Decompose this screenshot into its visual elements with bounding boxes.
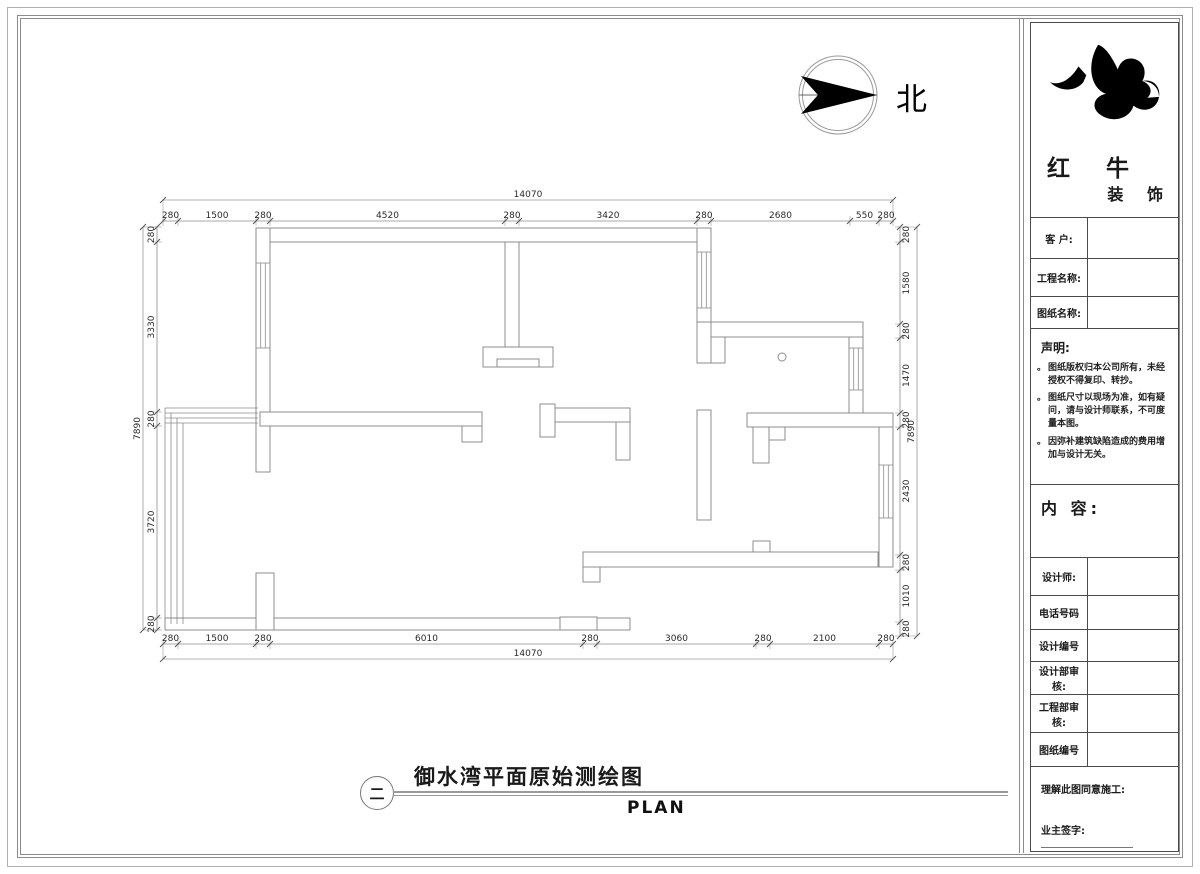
signature-line[interactable] (1041, 837, 1133, 848)
flue-symbol (778, 353, 786, 361)
dim-chain-left: 280333028037202807890 (133, 224, 162, 633)
dim-label: 6010 (415, 634, 438, 644)
drawing-subtitle: PLAN (627, 798, 686, 818)
north-arrow: 北 (799, 56, 927, 134)
project-value[interactable] (1088, 259, 1178, 296)
dim-chain-right: 28015802801470280243028010102807890 (895, 224, 920, 639)
wall (697, 322, 711, 363)
wall (697, 410, 711, 520)
dim-label: 2100 (813, 634, 836, 644)
design-no-label: 设计编号 (1031, 630, 1088, 661)
north-label: 北 (896, 82, 927, 118)
project-label: 工程名称: (1031, 259, 1088, 296)
content-label: 内 容: (1041, 495, 1101, 557)
statement-item: 因弥补建筑缺陷造成的费用增加与设计无关。 (1039, 436, 1172, 462)
dim-label: 280 (902, 620, 912, 637)
dim-label: 1010 (902, 584, 912, 607)
windows (256, 252, 893, 518)
customer-label: 客 户: (1031, 218, 1088, 259)
drawing-name-row: 图纸名称: (1031, 296, 1178, 328)
phone-value[interactable] (1088, 596, 1178, 629)
wall-pier (462, 426, 482, 442)
titleblock-separator (1019, 18, 1024, 853)
eng-audit-row: 工程部审核: (1031, 694, 1178, 732)
drawing-no-value[interactable] (1088, 733, 1178, 766)
dim-label: 280 (147, 615, 157, 632)
company-logo (1045, 31, 1163, 143)
floor-plan-drawing: 北 (0, 0, 1016, 874)
designer-label: 设计师: (1031, 558, 1088, 595)
wall-pier (256, 573, 274, 630)
dim-label: 280 (254, 211, 271, 221)
company-suffix: 装 饰 (1107, 181, 1172, 205)
dim-label: 3330 (147, 315, 157, 338)
dim-label: 280 (902, 226, 912, 243)
title-rule-2 (393, 795, 1008, 796)
walls (165, 228, 893, 630)
dim-label: 1500 (206, 634, 229, 644)
dim-label: 1500 (206, 211, 229, 221)
eng-audit-label: 工程部审核: (1031, 695, 1088, 732)
dim-label: 280 (902, 554, 912, 571)
dim-chain-bottom: 280150028060102803060280210028014070 (160, 634, 896, 662)
logo-body-icon (1091, 45, 1159, 119)
wall-pier (711, 337, 725, 363)
design-audit-value[interactable] (1088, 662, 1178, 694)
wall (256, 228, 270, 472)
wall-pier (583, 567, 600, 582)
dim-label: 280 (877, 634, 894, 644)
dim-label: 280 (581, 634, 598, 644)
wall-pier (560, 617, 597, 630)
project-row: 工程名称: (1031, 258, 1178, 296)
dim-label: 280 (877, 211, 894, 221)
statement-item: 图纸版权归本公司所有，未经授权不得复印、转抄。 (1039, 362, 1172, 388)
wall (879, 427, 893, 567)
dim-label: 4520 (376, 211, 399, 221)
owner-sign-label: 业主签字: (1041, 826, 1085, 837)
design-no-value[interactable] (1088, 630, 1178, 661)
design-audit-label: 设计部审核: (1031, 662, 1088, 694)
balcony-glazing (165, 408, 258, 624)
wall-notch (497, 359, 539, 367)
wall (260, 228, 710, 242)
dim-label: 3720 (147, 510, 157, 533)
logo-cell: 红 牛 装 饰 (1031, 23, 1178, 217)
dim-label: 280 (503, 211, 520, 221)
dim-label: 280 (695, 211, 712, 221)
eng-audit-value[interactable] (1088, 695, 1178, 732)
dim-chain-top: 280150028045202803420280268055028014070 (160, 190, 896, 226)
wall (616, 422, 630, 460)
drawing-no-label: 图纸编号 (1031, 733, 1088, 766)
dim-overall-label: 14070 (514, 649, 543, 659)
customer-value[interactable] (1088, 218, 1178, 259)
dim-label: 3420 (597, 211, 620, 221)
dim-label: 280 (162, 634, 179, 644)
customer-row: 客 户: (1031, 217, 1178, 259)
signature-section: 理解此图同意施工: 业主签字: (1031, 766, 1178, 851)
wall (747, 413, 893, 427)
wall-pier (540, 404, 555, 437)
design-audit-row: 设计部审核: (1031, 661, 1178, 694)
wall (505, 242, 519, 347)
dim-label: 1470 (902, 364, 912, 387)
dim-label: 1580 (902, 271, 912, 294)
drawing-title: 御水湾平面原始测绘图 (414, 761, 644, 791)
wall (711, 322, 863, 337)
title-block: 红 牛 装 饰 客 户: 工程名称: 图纸名称: 声明: 图纸版权归本公司所有，… (1030, 22, 1179, 852)
drawing-name-value[interactable] (1088, 297, 1178, 328)
wall-pier (753, 541, 770, 552)
dim-overall-label: 14070 (514, 190, 543, 200)
content-section: 内 容: (1031, 484, 1178, 557)
dim-label: 280 (754, 634, 771, 644)
statement-item: 图纸尺寸以现场为准，如有疑问，请与设计师联系，不可度量本图。 (1039, 392, 1172, 431)
logo-horn-icon (1050, 66, 1086, 89)
dim-label: 3060 (665, 634, 688, 644)
drawing-index-badge: 二 (360, 776, 394, 810)
designer-row: 设计师: (1031, 557, 1178, 595)
dim-overall-label: 7890 (907, 420, 917, 443)
wall-pier (753, 427, 769, 463)
statement-section: 声明: 图纸版权归本公司所有，未经授权不得复印、转抄。 图纸尺寸以现场为准，如有… (1031, 328, 1178, 484)
dim-label: 280 (147, 410, 157, 427)
dim-label: 280 (902, 322, 912, 339)
phone-label: 电话号码 (1031, 596, 1088, 629)
dim-label: 280 (147, 226, 157, 243)
wall (260, 412, 482, 426)
dim-overall-label: 7890 (133, 417, 143, 440)
drawing-index: 二 (369, 783, 384, 804)
phone-row: 电话号码 (1031, 595, 1178, 629)
dim-label: 2680 (769, 211, 792, 221)
wall (583, 552, 878, 567)
wall (553, 408, 630, 422)
dim-label: 280 (254, 634, 271, 644)
approve-label: 理解此图同意施工: (1041, 781, 1172, 796)
statement-title: 声明: (1041, 339, 1172, 356)
dim-label: 2430 (902, 479, 912, 502)
wall-pier (769, 427, 785, 440)
dim-label: 550 (856, 211, 873, 221)
drawing-name-label: 图纸名称: (1031, 297, 1088, 328)
dim-label: 280 (162, 211, 179, 221)
design-no-row: 设计编号 (1031, 629, 1178, 661)
designer-value[interactable] (1088, 558, 1178, 595)
drawing-no-row: 图纸编号 (1031, 732, 1178, 766)
title-rule (393, 791, 1008, 793)
company-name: 红 牛 (1047, 149, 1143, 183)
